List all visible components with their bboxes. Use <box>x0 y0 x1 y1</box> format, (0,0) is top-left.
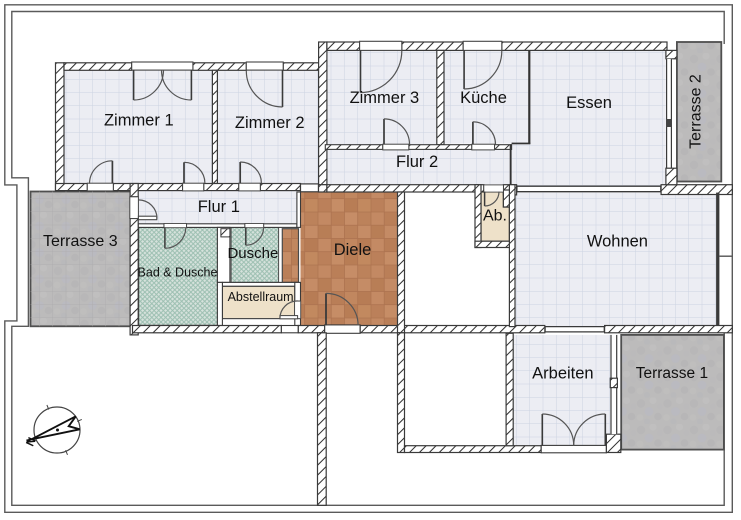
svg-text:Küche: Küche <box>460 89 507 107</box>
svg-text:Zimmer 1: Zimmer 1 <box>104 112 174 130</box>
svg-text:Ab.: Ab. <box>483 208 507 225</box>
svg-text:Diele: Diele <box>334 241 372 259</box>
svg-text:Abstellraum: Abstellraum <box>228 290 294 304</box>
svg-text:Arbeiten: Arbeiten <box>532 364 593 382</box>
svg-text:Flur 2: Flur 2 <box>396 153 438 171</box>
svg-text:Zimmer 3: Zimmer 3 <box>350 89 420 107</box>
svg-text:Essen: Essen <box>566 94 612 112</box>
svg-text:Dusche: Dusche <box>227 245 278 262</box>
svg-text:Terrasse 1: Terrasse 1 <box>636 365 708 382</box>
svg-text:Bad & Dusche: Bad & Dusche <box>138 266 218 280</box>
svg-text:Zimmer 2: Zimmer 2 <box>235 114 305 132</box>
svg-text:Terrasse 2: Terrasse 2 <box>688 74 705 149</box>
svg-text:Terrasse 3: Terrasse 3 <box>43 233 118 250</box>
svg-text:Wohnen: Wohnen <box>587 232 648 250</box>
svg-text:Flur 1: Flur 1 <box>198 198 240 216</box>
